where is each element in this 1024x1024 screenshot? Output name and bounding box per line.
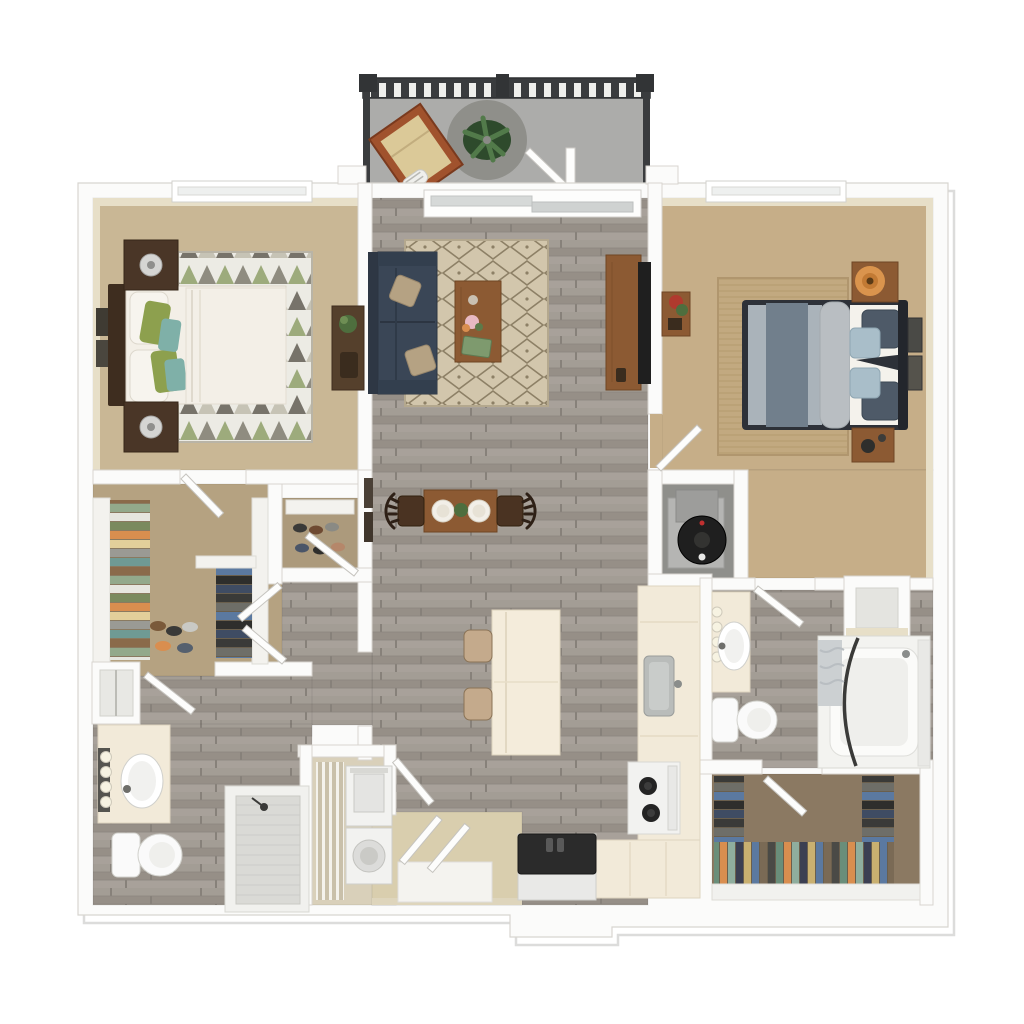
fridge-handle-1 — [546, 838, 553, 852]
linen-closet-1 — [92, 662, 140, 724]
nightstand-2b-item — [861, 439, 875, 453]
tv-console — [606, 255, 651, 390]
dining-area — [386, 490, 535, 532]
kitchen-island — [492, 610, 560, 755]
bar-stool-2 — [464, 688, 492, 720]
toilet-1 — [112, 833, 182, 877]
rail-post-center — [496, 74, 509, 98]
faucet-2-icon — [719, 643, 726, 650]
water-heater-icon — [678, 516, 726, 564]
vanity-2 — [712, 592, 750, 692]
balcony-junction-left — [338, 166, 366, 184]
headboard-2 — [898, 300, 908, 430]
fridge-handle-2 — [557, 838, 564, 852]
pillow-lightblue-2 — [850, 368, 880, 398]
pillow-teal-2 — [164, 358, 187, 392]
bedroom2-door-opening — [650, 414, 662, 468]
bedroom2-dressing-floor — [748, 470, 933, 578]
faucet-icon — [674, 680, 682, 688]
toilet-2 — [712, 698, 777, 742]
stacked-washer-dryer — [346, 766, 392, 884]
bedroom1-window — [172, 181, 312, 202]
lit-lamp-icon — [855, 266, 885, 296]
bed-1 — [108, 284, 286, 406]
folded-duvet-roll — [820, 302, 850, 428]
wire-shelving — [316, 762, 344, 900]
utility-closet — [668, 490, 726, 568]
vanity-light-3 — [101, 782, 112, 793]
vanity-light-4 — [101, 797, 112, 808]
linen-closet-2 — [844, 576, 910, 636]
blanket-band — [766, 303, 808, 427]
kitchen-counter-south — [594, 840, 700, 898]
closet2-clothes-south — [714, 842, 894, 886]
coffee-table — [455, 281, 501, 362]
closet2-clothes-east — [862, 776, 894, 846]
rail-post-left — [359, 74, 377, 92]
floor-plan-svg — [0, 0, 1024, 1024]
centerpiece-plant-icon — [454, 503, 468, 517]
vanity-light-1 — [101, 752, 112, 763]
small-plate — [468, 295, 478, 305]
headboard — [108, 284, 126, 406]
pillow-lightblue-1 — [850, 328, 880, 358]
vanity2-light-2 — [712, 622, 722, 632]
tub-shower-head-icon — [902, 650, 910, 658]
faucet-1-icon — [123, 785, 131, 793]
bedroom2-window — [706, 181, 846, 202]
closet1-partition — [196, 556, 256, 568]
balcony — [359, 74, 654, 200]
tv — [638, 262, 651, 384]
refrigerator — [518, 834, 596, 900]
balcony-sliding-door — [424, 190, 641, 217]
closet2-shelf — [712, 884, 920, 900]
bathtub — [818, 636, 930, 768]
walk-in-shower — [225, 786, 309, 912]
closet1-shelf-west — [93, 498, 110, 664]
vanity-1 — [98, 725, 170, 823]
green-book — [461, 336, 491, 358]
desk-with-plant — [332, 306, 364, 390]
shower-curtain-fabric — [818, 640, 844, 706]
tub-tile-strip — [918, 640, 930, 766]
sofa — [368, 252, 437, 394]
vanity-light-2 — [101, 767, 112, 778]
bar-stool-1 — [464, 630, 492, 662]
door-mat — [398, 862, 492, 902]
vanity2-light-1 — [712, 607, 722, 617]
closet2-clothes-west — [714, 776, 744, 846]
plant-shelf — [662, 292, 690, 336]
remote — [616, 368, 626, 382]
bed-2 — [742, 300, 908, 430]
balcony-junction-right — [646, 166, 678, 184]
oven-handle — [668, 766, 677, 830]
range-stove — [628, 762, 680, 834]
rail-post-right — [636, 74, 654, 92]
hanging-clothes-west — [110, 500, 150, 660]
floor-plan-page: { "document": { "type": "3d-floor-plan-r… — [0, 0, 1024, 1024]
